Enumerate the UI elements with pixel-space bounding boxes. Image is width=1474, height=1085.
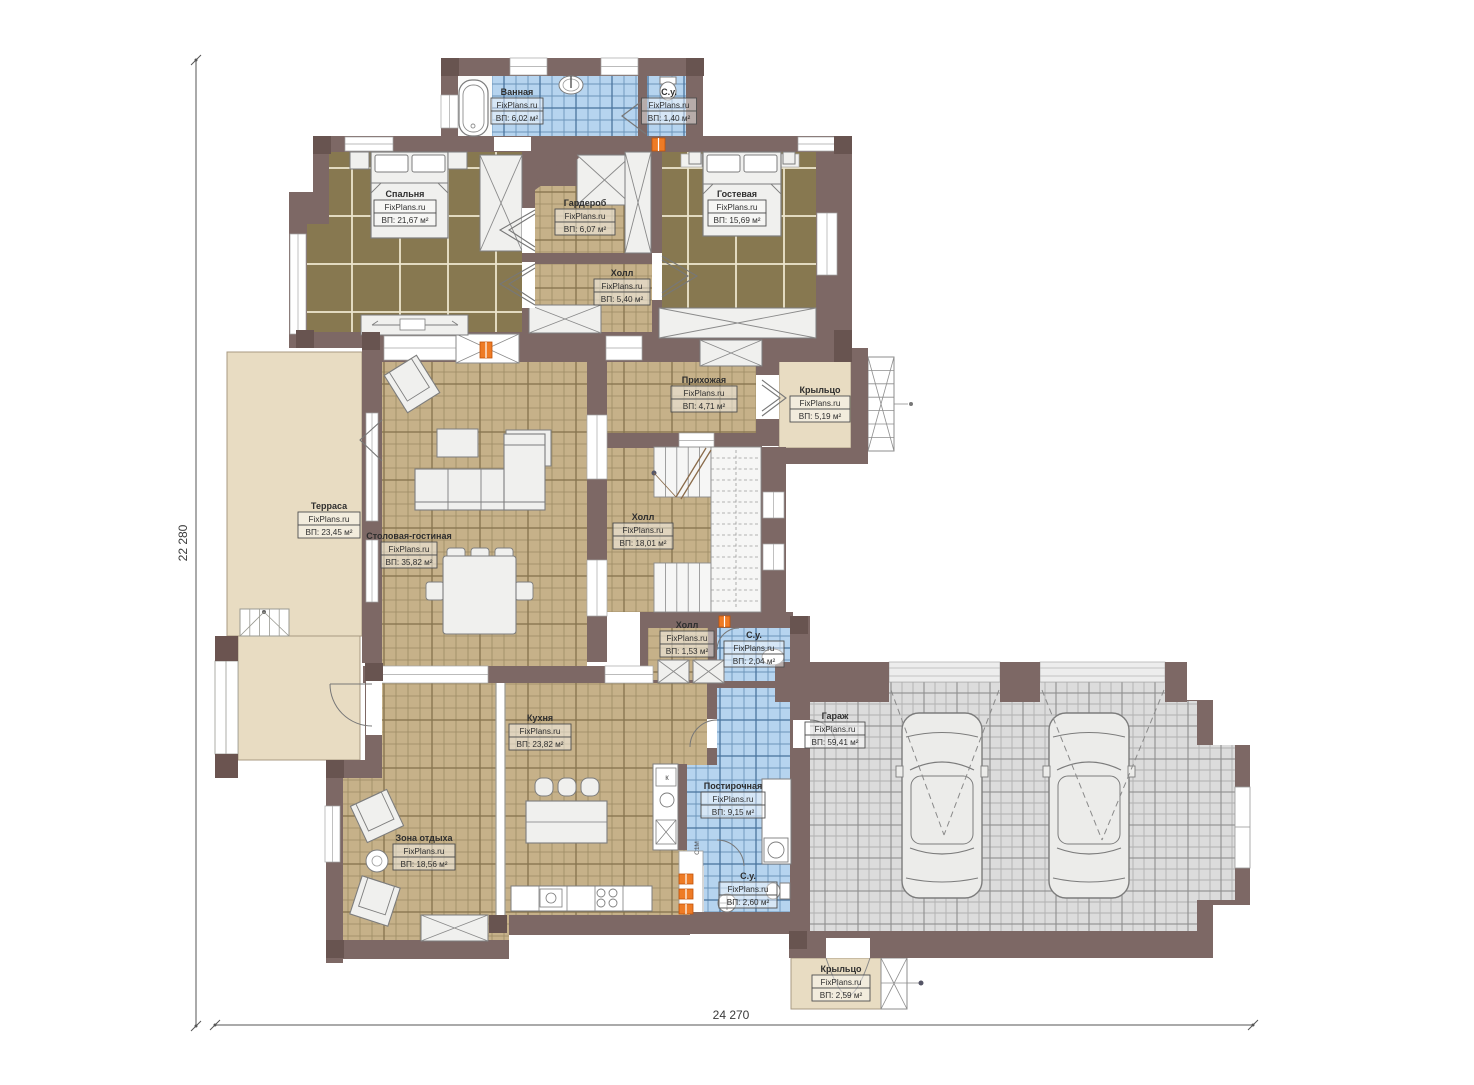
svg-text:С.у.: С.у. [661,87,677,97]
svg-text:FixPlans.ru: FixPlans.ru [667,634,708,643]
svg-text:FixPlans.ru: FixPlans.ru [389,545,430,554]
svg-text:С.у.: С.у. [746,630,762,640]
svg-text:FixPlans.ru: FixPlans.ru [404,847,445,856]
svg-text:FixPlans.ru: FixPlans.ru [800,399,841,408]
svg-text:Столовая-гостиная: Столовая-гостиная [366,531,451,541]
svg-text:FixPlans.ru: FixPlans.ru [717,203,758,212]
svg-text:FixPlans.ru: FixPlans.ru [815,725,856,734]
svg-text:ВП: 59,41 м²: ВП: 59,41 м² [811,738,858,747]
svg-text:ВП: 18,01 м²: ВП: 18,01 м² [619,539,666,548]
svg-text:ВП: 1,53 м²: ВП: 1,53 м² [666,647,709,656]
svg-text:24 270: 24 270 [713,1008,750,1022]
svg-text:Терраса: Терраса [311,501,348,511]
svg-text:ВП: 2,60 м²: ВП: 2,60 м² [727,898,770,907]
svg-text:FixPlans.ru: FixPlans.ru [565,212,606,221]
svg-text:С.у.: С.у. [740,871,756,881]
svg-text:FixPlans.ru: FixPlans.ru [520,727,561,736]
svg-text:С1М: С1М [694,841,701,855]
svg-text:FixPlans.ru: FixPlans.ru [497,101,538,110]
svg-text:ВП: 2,04 м²: ВП: 2,04 м² [733,657,776,666]
svg-text:ВП: 5,19 м²: ВП: 5,19 м² [799,412,842,421]
svg-text:Ванная: Ванная [501,87,534,97]
svg-text:Холл: Холл [611,268,634,278]
svg-text:ВП: 4,71 м²: ВП: 4,71 м² [683,402,726,411]
svg-text:FixPlans.ru: FixPlans.ru [602,282,643,291]
svg-text:ВП: 6,02 м²: ВП: 6,02 м² [496,114,539,123]
svg-text:FixPlans.ru: FixPlans.ru [623,526,664,535]
svg-text:Прихожая: Прихожая [682,375,726,385]
svg-text:Гостевая: Гостевая [717,189,757,199]
svg-text:ВП: 35,82 м²: ВП: 35,82 м² [385,558,432,567]
svg-text:Зона отдыха: Зона отдыха [395,833,453,843]
svg-text:FixPlans.ru: FixPlans.ru [713,795,754,804]
svg-text:FixPlans.ru: FixPlans.ru [821,978,862,987]
svg-text:Гардероб: Гардероб [564,198,607,208]
svg-text:ВП: 23,45 м²: ВП: 23,45 м² [305,528,352,537]
svg-text:FixPlans.ru: FixPlans.ru [734,644,775,653]
svg-text:Гараж: Гараж [822,711,849,721]
svg-text:Постирочная: Постирочная [704,781,762,791]
svg-text:Крыльцо: Крыльцо [800,385,841,395]
svg-text:22 280: 22 280 [176,524,190,561]
svg-text:FixPlans.ru: FixPlans.ru [385,203,426,212]
svg-text:FixPlans.ru: FixPlans.ru [684,389,725,398]
svg-text:ВП: 18,56 м²: ВП: 18,56 м² [400,860,447,869]
svg-text:ВП: 15,69 м²: ВП: 15,69 м² [713,216,760,225]
svg-text:FixPlans.ru: FixPlans.ru [309,515,350,524]
svg-text:Холл: Холл [676,620,699,630]
svg-text:FixPlans.ru: FixPlans.ru [728,885,769,894]
svg-text:ВП: 9,15 м²: ВП: 9,15 м² [712,808,755,817]
svg-text:ВП: 23,82 м²: ВП: 23,82 м² [516,740,563,749]
svg-text:ВП: 2,59 м²: ВП: 2,59 м² [820,991,863,1000]
svg-text:ВП: 21,67 м²: ВП: 21,67 м² [381,216,428,225]
svg-text:ВП: 1,40 м²: ВП: 1,40 м² [648,114,691,123]
svg-text:ВП: 5,40 м²: ВП: 5,40 м² [601,295,644,304]
svg-text:Холл: Холл [632,512,655,522]
svg-text:FixPlans.ru: FixPlans.ru [649,101,690,110]
svg-text:Крыльцо: Крыльцо [821,964,862,974]
svg-text:Спальня: Спальня [386,189,425,199]
svg-text:ВП: 6,07 м²: ВП: 6,07 м² [564,225,607,234]
svg-text:Кухня: Кухня [527,713,553,723]
svg-text:к: к [665,773,669,782]
